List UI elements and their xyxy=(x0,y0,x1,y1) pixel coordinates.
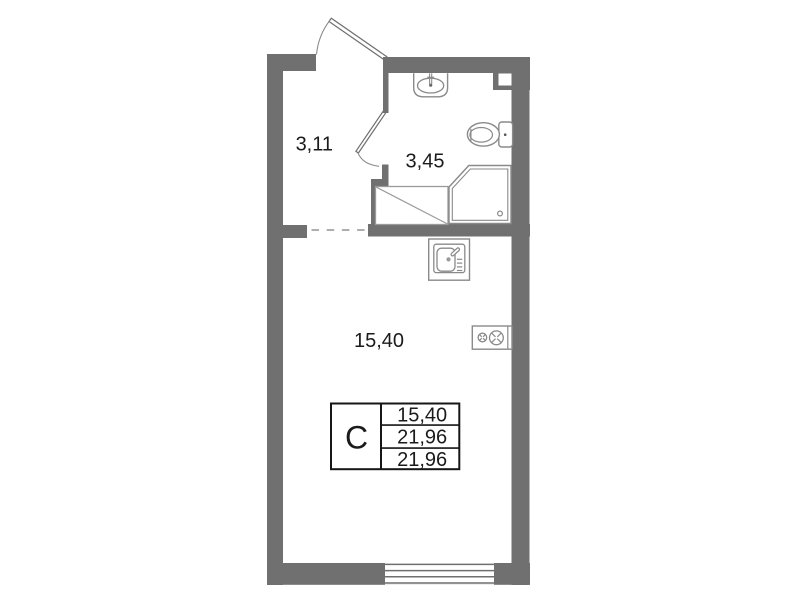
svg-text:15,40: 15,40 xyxy=(397,404,447,426)
svg-text:3,45: 3,45 xyxy=(406,151,445,173)
svg-text:15,40: 15,40 xyxy=(354,330,404,352)
svg-text:3,11: 3,11 xyxy=(296,134,333,156)
svg-text:21,96: 21,96 xyxy=(397,427,447,449)
svg-text:С: С xyxy=(345,420,368,456)
svg-text:21,96: 21,96 xyxy=(397,449,447,471)
